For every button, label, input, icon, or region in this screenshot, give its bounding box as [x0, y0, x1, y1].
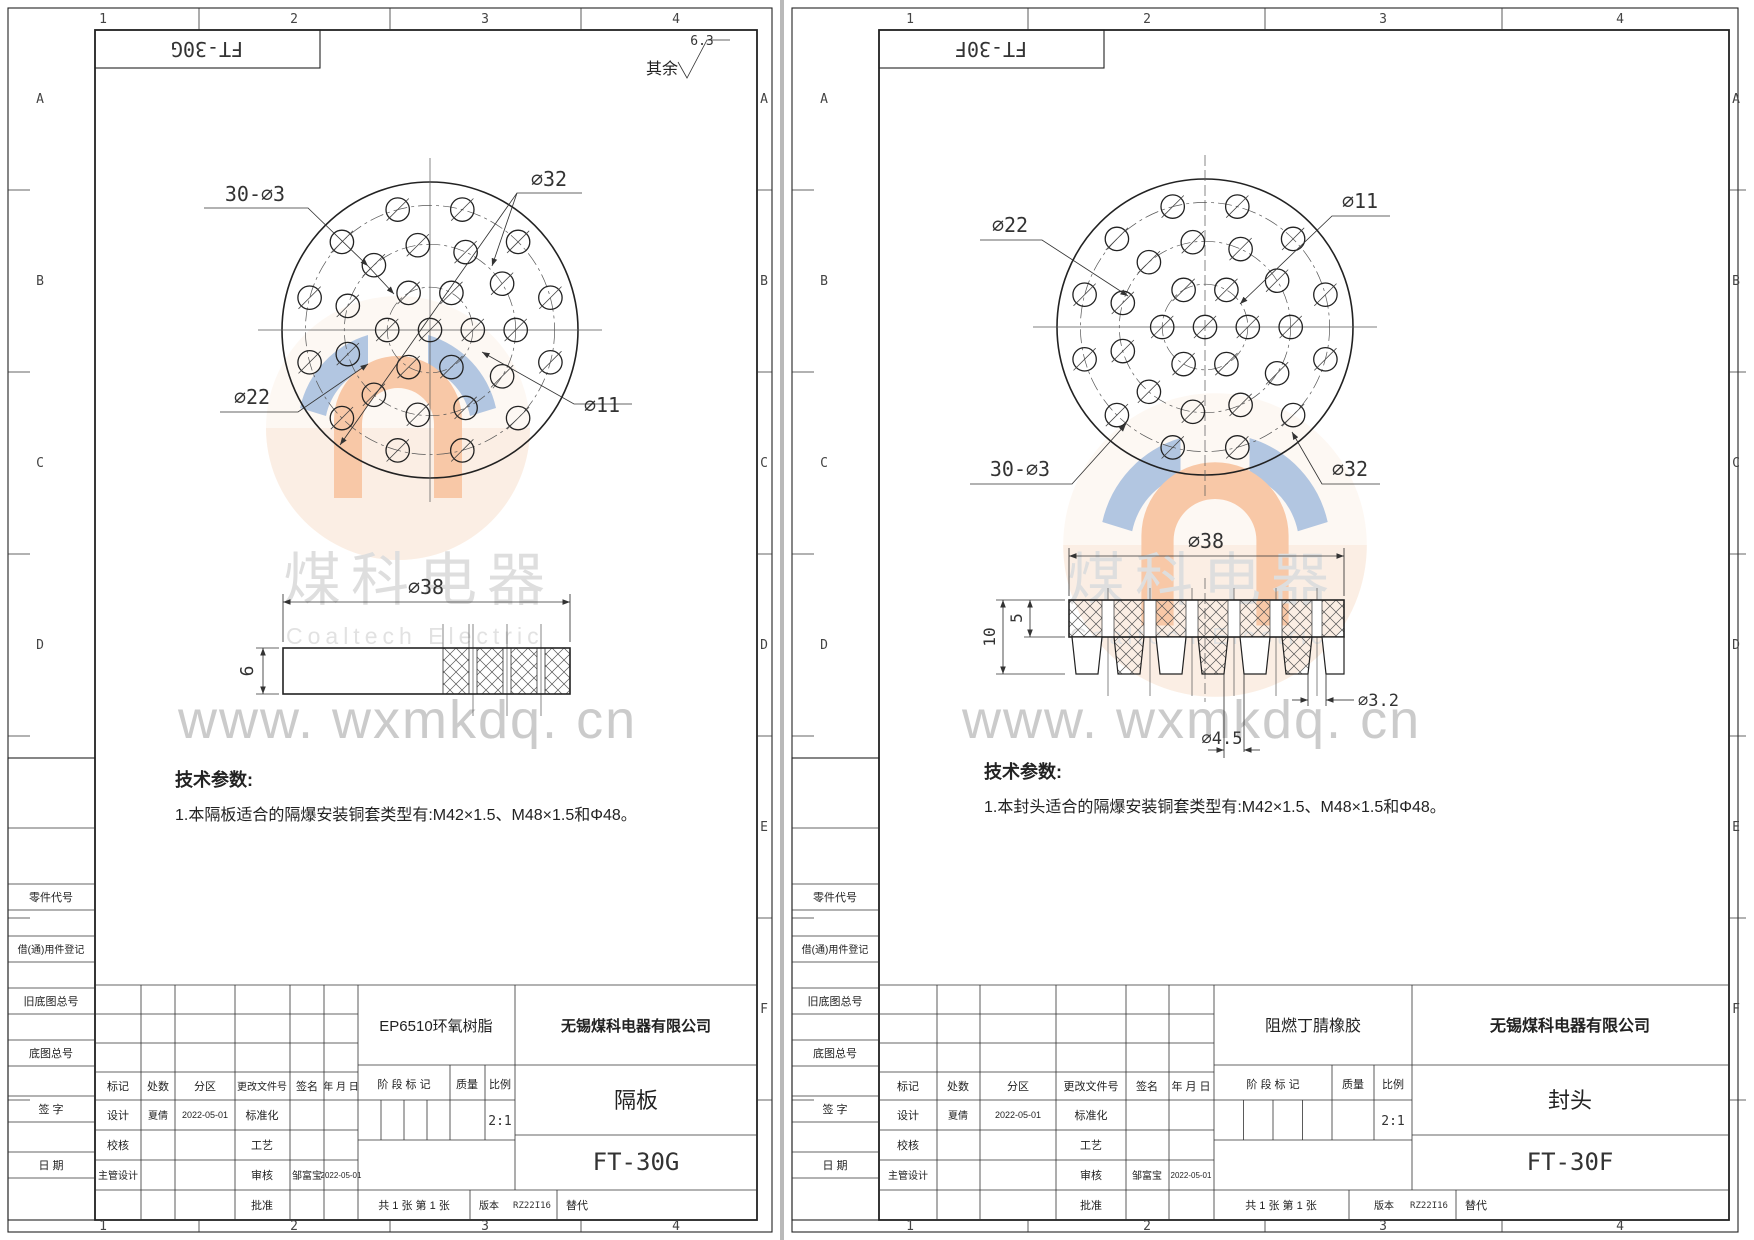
- zone-label: 3: [1379, 1219, 1387, 1234]
- zone-label: A: [1732, 92, 1740, 107]
- sheet-canvas-right: 煤科电器 Coaltech Electric www. wxmkdq. cn 1…: [784, 0, 1754, 1240]
- watermark: 煤科电器 Coaltech Electric www. wxmkdq. cn: [961, 393, 1421, 750]
- zone-label: B: [1732, 274, 1740, 289]
- tb-stage-header: 阶 段 标 记: [377, 1077, 430, 1091]
- zone-label: 1: [906, 12, 914, 27]
- tb-scale-value: 2:1: [488, 1114, 511, 1129]
- zone-label: D: [820, 638, 828, 653]
- tb-company: 无锡煤科电器有限公司: [1489, 1016, 1650, 1035]
- dim-label-hole-bottom: ⌀4.5: [1202, 729, 1243, 749]
- tb-audit-date: 2022-05-01: [1171, 1171, 1212, 1180]
- tb-drawing-no: FT-30F: [1527, 1148, 1614, 1176]
- tb-header-changedoc: 更改文件号: [1064, 1079, 1119, 1093]
- dim-label-holes: 30-⌀3: [990, 457, 1050, 481]
- doc-number-box: FT-30G: [95, 30, 320, 68]
- zone-label: E: [1732, 820, 1740, 835]
- doc-number-box: FT-30F: [879, 30, 1104, 68]
- tb-role-check: 校核: [107, 1138, 129, 1152]
- zone-label: 4: [1616, 1219, 1624, 1234]
- doc-number-rotated: FT-30F: [955, 37, 1027, 61]
- zone-label: B: [36, 274, 44, 289]
- tb-header-count: 处数: [947, 1080, 969, 1093]
- tech-title: 技术参数:: [984, 761, 1062, 782]
- dim-label-bc32: ⌀32: [531, 167, 567, 191]
- dim-label-band-h: 5: [1007, 613, 1026, 623]
- tb-sheet-note: 共 1 张 第 1 张: [1245, 1198, 1317, 1212]
- tb-role-process: 工艺: [251, 1139, 273, 1152]
- tb-quality-header: 质量: [456, 1078, 478, 1091]
- tb-scale-header: 比例: [1382, 1077, 1404, 1091]
- tb-header-zone: 分区: [194, 1080, 216, 1093]
- zone-label: 3: [1379, 12, 1387, 27]
- tb-material: 阻燃丁腈橡胶: [1265, 1017, 1361, 1035]
- tb-part-name: 隔板: [614, 1088, 658, 1113]
- surface-finish-note: 其余 6.3: [646, 34, 730, 78]
- zone-label: A: [820, 92, 828, 107]
- zone-label: E: [760, 820, 768, 835]
- zone-label: 2: [1143, 1219, 1151, 1234]
- dim-label-bc32: ⌀32: [1332, 457, 1368, 481]
- dim-label-hole-top: ⌀3.2: [1358, 691, 1399, 711]
- tb-quality-header: 质量: [1342, 1078, 1364, 1091]
- tb-header-sign: 签名: [1136, 1079, 1158, 1093]
- zone-label: A: [36, 92, 44, 107]
- tb-role-chief: 主管设计: [888, 1169, 928, 1182]
- zone-label: B: [820, 274, 828, 289]
- zone-label: 3: [481, 12, 489, 27]
- tb-auditor: 邹富宝: [1132, 1169, 1162, 1182]
- zone-label: D: [36, 638, 44, 653]
- tb-role-process: 工艺: [1080, 1139, 1102, 1152]
- surface-finish-icon: [678, 40, 730, 78]
- zone-label: C: [36, 456, 44, 471]
- dim-label-bc11: ⌀11: [584, 393, 620, 417]
- tb-version-label: 版本: [1374, 1199, 1394, 1212]
- tech-line1: 1.本封头适合的隔爆安装铜套类型有:M42×1.5、M48×1.5和Φ48。: [984, 797, 1446, 816]
- margin-label: 借(通)用件登记: [802, 943, 869, 956]
- tb-role-approve: 批准: [1080, 1198, 1102, 1212]
- zone-label: C: [760, 456, 768, 471]
- tb-role-standardize: 标准化: [246, 1108, 279, 1122]
- tb-header-date: 年 月 日: [323, 1080, 359, 1093]
- tb-replace-label: 替代: [1465, 1198, 1487, 1212]
- title-block: 标记 处数 分区 更改文件号 签名 年 月 日 设计 夏倩 2022-05-01…: [95, 985, 757, 1220]
- dim-label-thickness: 6: [237, 666, 258, 677]
- tb-role-design: 设计: [897, 1109, 919, 1122]
- zone-label: 4: [1616, 12, 1624, 27]
- tb-sheet-note: 共 1 张 第 1 张: [378, 1198, 450, 1212]
- margin-label: 零件代号: [813, 891, 857, 904]
- margin-label: 旧底图总号: [808, 994, 863, 1008]
- title-block: 标记 处数 分区 更改文件号 签名 年 月 日 设计 夏倩 2022-05-01…: [879, 985, 1729, 1220]
- margin-label: 日 期: [38, 1159, 63, 1172]
- doc-number-rotated: FT-30G: [171, 37, 243, 61]
- watermark-en: Coaltech Electric: [286, 623, 544, 649]
- tb-scale-value: 2:1: [1381, 1114, 1404, 1129]
- page: { "common": { "zones": {"cols": ["1","2"…: [0, 0, 1754, 1240]
- surface-finish-value: 6.3: [690, 34, 713, 49]
- dim-label-total-h: 10: [980, 627, 999, 646]
- tb-role-standardize: 标准化: [1075, 1108, 1108, 1122]
- zone-label: 2: [1143, 12, 1151, 27]
- margin-label: 底图总号: [813, 1046, 857, 1060]
- tb-version-value: RZ22I16: [1410, 1201, 1448, 1211]
- dim-label-bc11: ⌀11: [1342, 189, 1378, 213]
- tech-line1: 1.本隔板适合的隔爆安装铜套类型有:M42×1.5、M48×1.5和Φ48。: [175, 805, 637, 824]
- tb-role-chief: 主管设计: [98, 1169, 138, 1182]
- dim-label-holes: 30-⌀3: [225, 182, 285, 206]
- zone-label: 1: [99, 1219, 107, 1234]
- tb-stage-header: 阶 段 标 记: [1246, 1077, 1299, 1091]
- tb-header-zone: 分区: [1007, 1080, 1029, 1093]
- tb-material: EP6510环氧树脂: [379, 1018, 492, 1035]
- tb-part-name: 封头: [1548, 1088, 1592, 1113]
- tb-header-count: 处数: [147, 1080, 169, 1093]
- zone-label: A: [760, 92, 768, 107]
- zone-label: 4: [672, 1219, 680, 1234]
- tb-company: 无锡煤科电器有限公司: [560, 1017, 711, 1035]
- dim-label-od: ⌀38: [408, 575, 444, 599]
- margin-label: 旧底图总号: [24, 994, 79, 1008]
- sheet-canvas-left: 煤科电器 Coaltech Electric www. wxmkdq. cn 1…: [0, 0, 780, 1240]
- dim-label-bc22: ⌀22: [992, 213, 1028, 237]
- zone-label: 2: [290, 12, 298, 27]
- tb-header-date: 年 月 日: [1171, 1079, 1210, 1093]
- tb-header-changedoc: 更改文件号: [237, 1080, 287, 1093]
- drawing-sheet-ft30f: 煤科电器 Coaltech Electric www. wxmkdq. cn 1…: [784, 0, 1754, 1240]
- zone-label: F: [1732, 1002, 1740, 1017]
- dim-label-bc22: ⌀22: [234, 385, 270, 409]
- tb-header-mark: 标记: [107, 1079, 129, 1093]
- margin-table: 零件代号 借(通)用件登记 旧底图总号 底图总号 签 字 日 期: [8, 758, 95, 1220]
- zone-label: B: [760, 274, 768, 289]
- zone-label: 1: [99, 12, 107, 27]
- tb-version-value: RZ22I16: [513, 1201, 551, 1211]
- tb-drawing-no: FT-30G: [593, 1148, 680, 1176]
- margin-label: 签 字: [38, 1102, 63, 1116]
- tb-scale-header: 比例: [489, 1077, 511, 1091]
- sheet-frame: [8, 8, 772, 1232]
- tb-role-approve: 批准: [251, 1198, 273, 1212]
- tb-version-label: 版本: [479, 1199, 499, 1212]
- tb-role-audit: 审核: [1080, 1168, 1102, 1182]
- tb-role-check: 校核: [897, 1138, 919, 1152]
- surface-finish-prefix: 其余: [646, 59, 678, 78]
- zone-label: 2: [290, 1219, 298, 1234]
- tb-designer: 夏倩: [148, 1109, 168, 1122]
- tb-replace-label: 替代: [566, 1198, 588, 1212]
- tb-role-audit: 审核: [251, 1168, 273, 1182]
- zone-label: D: [1732, 638, 1740, 653]
- watermark-url: www. wxmkdq. cn: [961, 690, 1421, 750]
- watermark-url: www. wxmkdq. cn: [177, 690, 637, 750]
- margin-label: 借(通)用件登记: [18, 943, 85, 956]
- tb-role-design: 设计: [107, 1109, 129, 1122]
- drawing-sheet-ft30g: 煤科电器 Coaltech Electric www. wxmkdq. cn 1…: [0, 0, 780, 1240]
- margin-label: 签 字: [822, 1102, 847, 1116]
- tb-header-sign: 签名: [296, 1079, 318, 1093]
- tb-design-date: 2022-05-01: [995, 1110, 1041, 1120]
- zone-label: C: [1732, 456, 1740, 471]
- zone-label: F: [760, 1002, 768, 1017]
- technical-notes: 技术参数: 1.本封头适合的隔爆安装铜套类型有:M42×1.5、M48×1.5和…: [984, 761, 1446, 816]
- margin-label: 底图总号: [29, 1046, 73, 1060]
- margin-table: 零件代号 借(通)用件登记 旧底图总号 底图总号 签 字 日 期: [792, 758, 879, 1220]
- tech-title: 技术参数:: [175, 769, 253, 790]
- technical-notes: 技术参数: 1.本隔板适合的隔爆安装铜套类型有:M42×1.5、M48×1.5和…: [175, 769, 637, 824]
- tb-auditor: 邹富宝: [292, 1169, 322, 1182]
- zone-label: 4: [672, 12, 680, 27]
- zone-label: D: [760, 638, 768, 653]
- zone-label: 3: [481, 1219, 489, 1234]
- tb-header-mark: 标记: [897, 1079, 919, 1093]
- margin-label: 日 期: [822, 1159, 847, 1172]
- zone-label: C: [820, 456, 828, 471]
- tb-design-date: 2022-05-01: [182, 1110, 228, 1120]
- zone-label: 1: [906, 1219, 914, 1234]
- tb-audit-date: 2022-05-01: [321, 1171, 362, 1180]
- tb-designer: 夏倩: [948, 1109, 968, 1122]
- dim-label-od: ⌀38: [1188, 529, 1224, 553]
- margin-label: 零件代号: [29, 891, 73, 904]
